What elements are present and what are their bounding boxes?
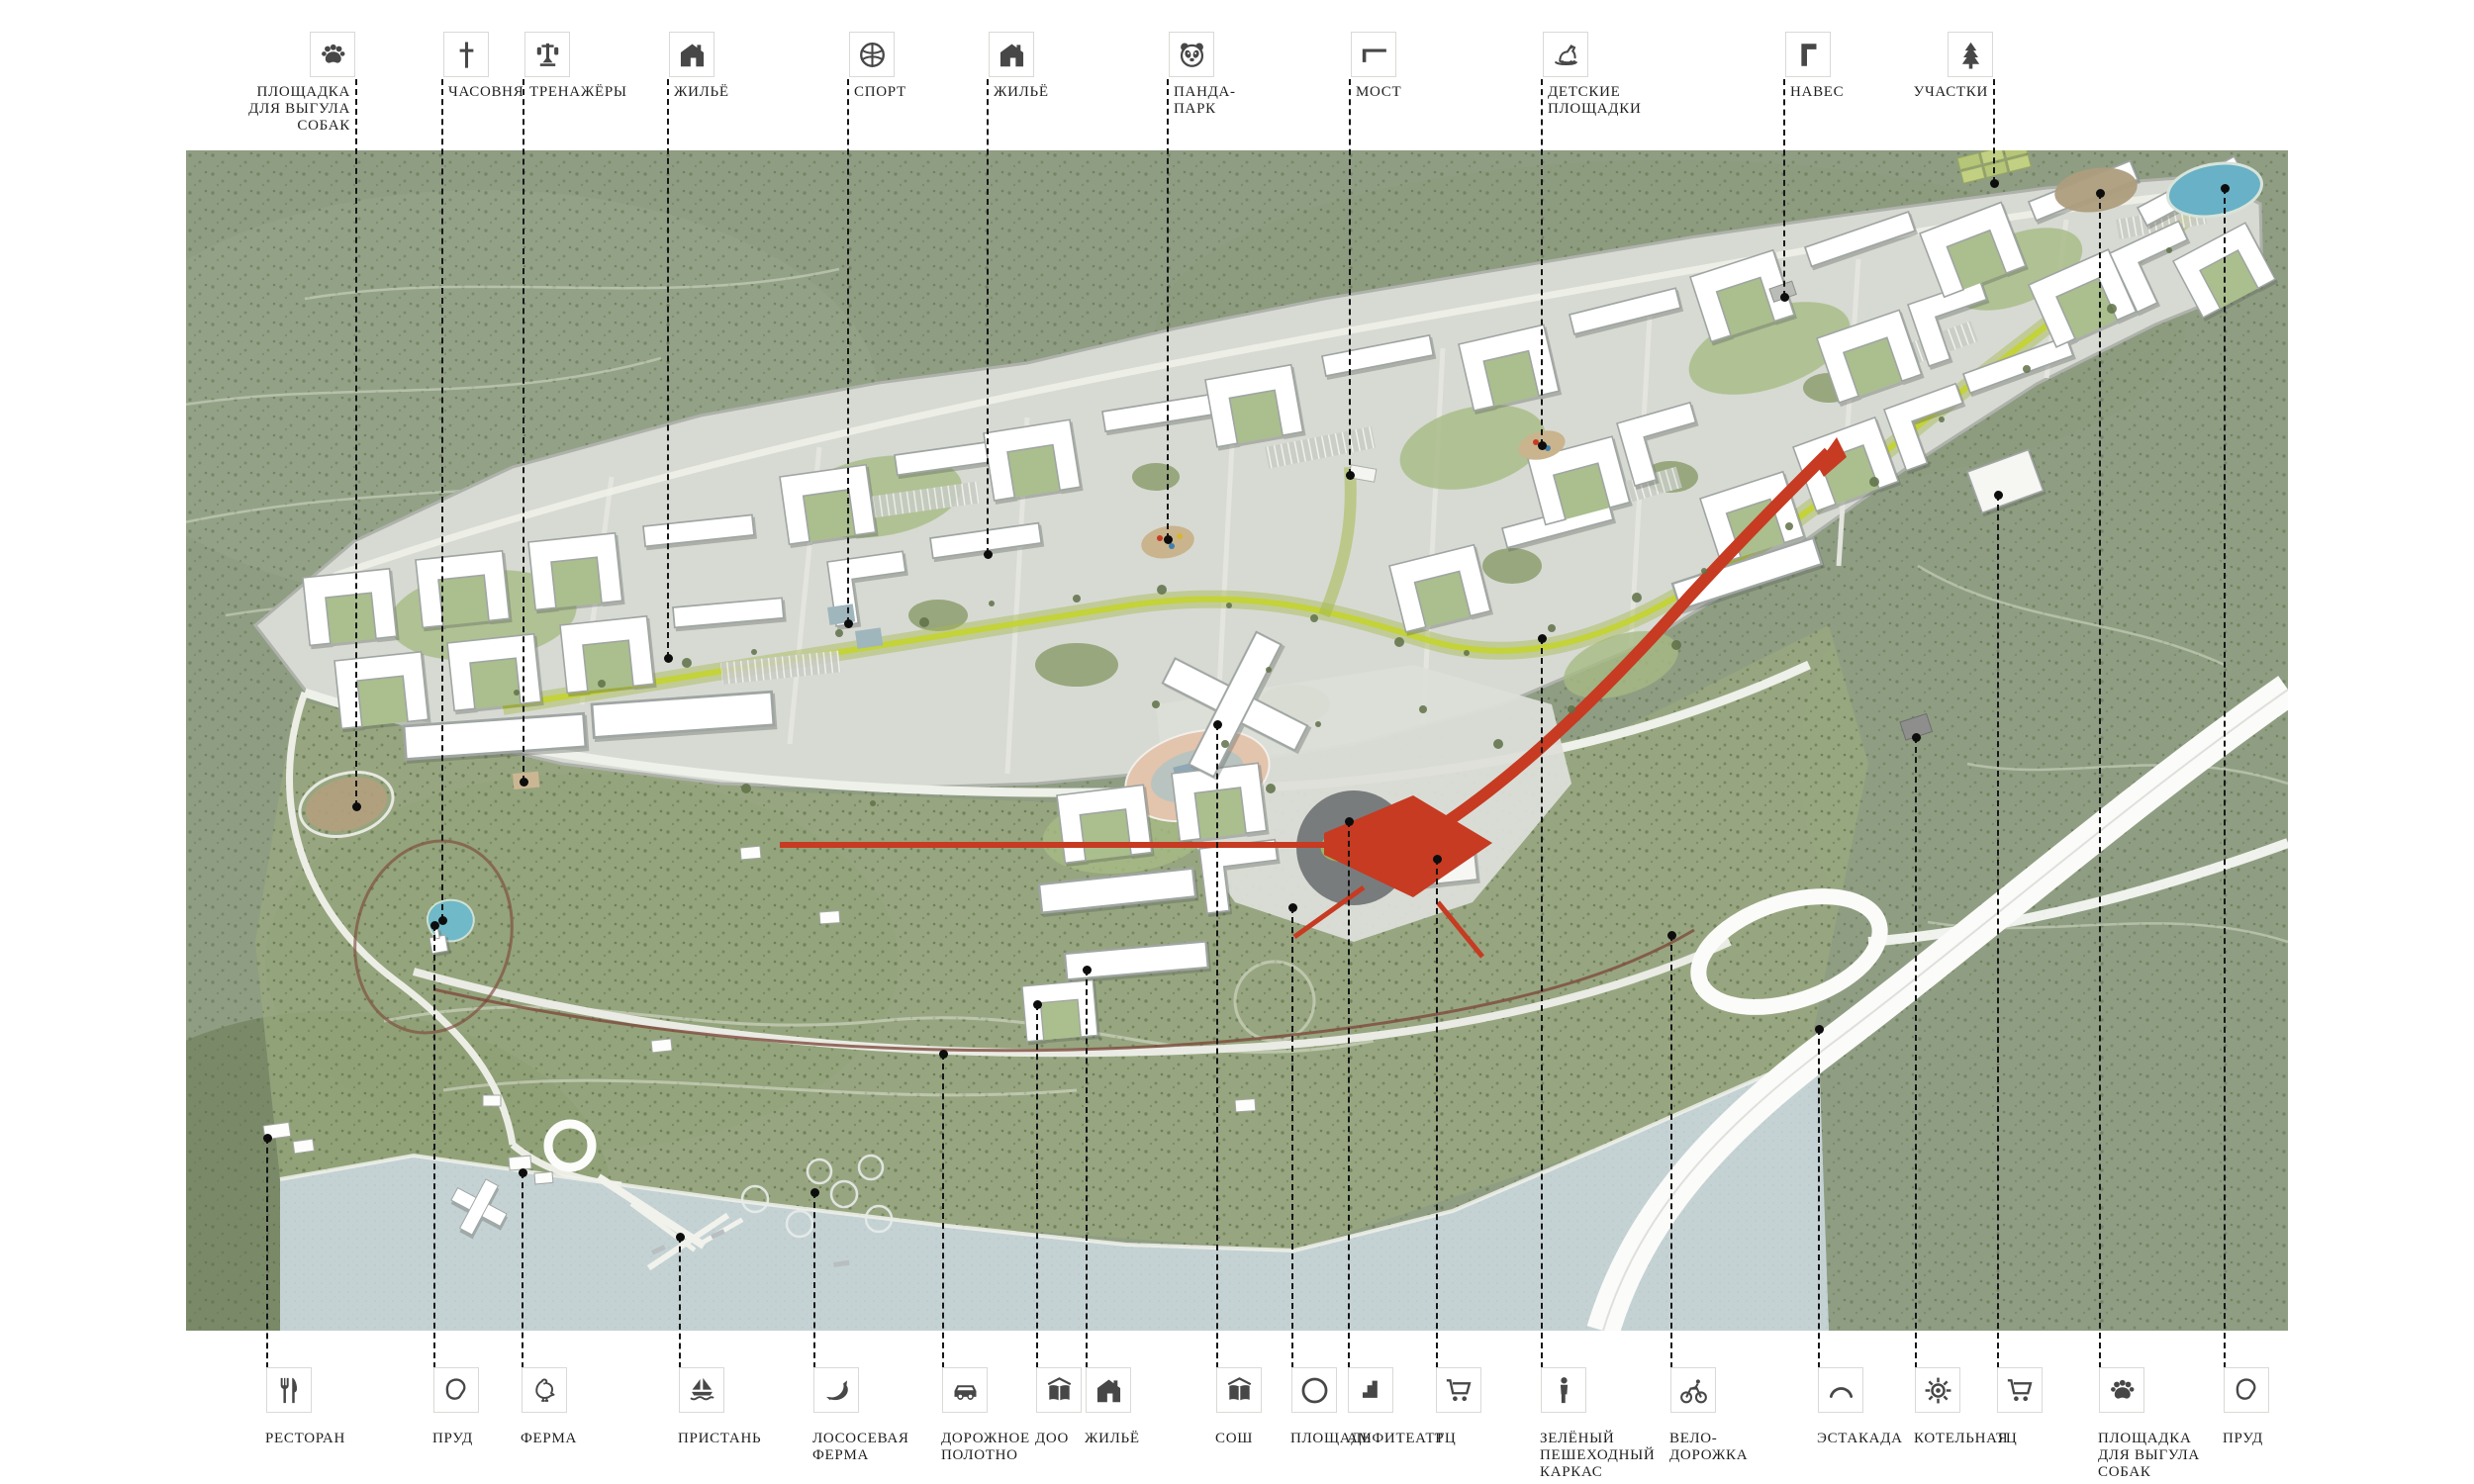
fish-icon <box>820 1374 853 1407</box>
leader-line <box>1541 79 1543 445</box>
legend-label: ПЛОЩАДКА ДЛЯ ВЫГУЛА СОБАК <box>2098 1431 2200 1481</box>
leader-dot <box>1990 179 1999 188</box>
circle-icon <box>1298 1374 1331 1407</box>
legend-label: ТРЕНАЖЁРЫ <box>529 84 627 101</box>
legend-iconbox <box>813 1367 859 1413</box>
leader-line <box>1436 859 1438 1368</box>
masterplan-map <box>186 150 2288 1331</box>
legend-label: НАВЕС <box>1790 84 1844 101</box>
leader-dot <box>2096 189 2105 198</box>
car-icon <box>949 1374 982 1407</box>
legend-iconbox <box>524 32 570 77</box>
restaurant-icon <box>273 1374 306 1407</box>
legend-label: ПРУД <box>432 1431 473 1447</box>
leader-dot <box>2221 184 2230 193</box>
leader-dot <box>1994 491 2003 500</box>
legend-label: ПРУД <box>2223 1431 2263 1447</box>
school-book-icon <box>1223 1374 1256 1407</box>
paw-icon <box>2106 1374 2139 1407</box>
leader-dot <box>438 916 447 925</box>
legend-label: УЧАСТКИ <box>1914 84 1988 101</box>
leader-dot <box>520 778 528 787</box>
leader-dot <box>844 619 853 628</box>
leader-dot <box>676 1233 685 1242</box>
house-icon <box>1093 1374 1125 1407</box>
pedestrian-icon <box>1548 1374 1580 1407</box>
legend-label: ДОО <box>1035 1431 1069 1447</box>
leader-line <box>987 79 989 554</box>
amphitheatre-icon <box>1355 1374 1387 1407</box>
legend-iconbox <box>1785 32 1831 77</box>
leader-line <box>1670 935 1672 1368</box>
legend-iconbox <box>2224 1367 2269 1413</box>
legend-iconbox <box>942 1367 988 1413</box>
leader-dot <box>810 1188 819 1197</box>
leader-dot <box>1538 441 1547 450</box>
leader-dot <box>1288 903 1297 912</box>
leader-line <box>1291 907 1293 1368</box>
legend-iconbox <box>1670 1367 1716 1413</box>
leader-line <box>679 1237 681 1368</box>
sailboat-icon <box>686 1374 718 1407</box>
pond-icon <box>440 1374 473 1407</box>
leader-dot <box>1780 293 1789 302</box>
leader-line <box>1783 79 1785 297</box>
legend-label: ПРИСТАНЬ <box>678 1431 761 1447</box>
legend-iconbox <box>522 1367 567 1413</box>
gear-icon <box>1922 1374 1954 1407</box>
leader-line <box>2099 193 2101 1368</box>
legend-label: ДЕТСКИЕ ПЛОЩАДКИ <box>1548 84 1641 118</box>
leader-line <box>523 79 524 782</box>
leader-line <box>667 79 669 658</box>
bicycle-icon <box>1677 1374 1710 1407</box>
legend-iconbox <box>1086 1367 1131 1413</box>
legend-iconbox <box>1948 32 1993 77</box>
legend-label: ДОРОЖНОЕ ПОЛОТНО <box>941 1431 1030 1464</box>
legend-label: ЛОСОСЕВАЯ ФЕРМА <box>812 1431 909 1464</box>
chicken-icon <box>528 1374 561 1407</box>
legend-iconbox <box>266 1367 312 1413</box>
legend-iconbox <box>443 32 489 77</box>
leader-line <box>433 925 435 1368</box>
overpass-icon <box>1825 1374 1857 1407</box>
legend-label: ЗЕЛЁНЫЙ ПЕШЕХОДНЫЙ КАРКАС <box>1540 1431 1655 1481</box>
leader-dot <box>263 1134 272 1143</box>
legend-iconbox <box>2099 1367 2144 1413</box>
pond-icon <box>2231 1374 2263 1407</box>
leader-line <box>1036 1004 1038 1368</box>
leader-line <box>522 1172 523 1368</box>
legend-label: ЖИЛЬЁ <box>674 84 729 101</box>
legend-label: АМФИТЕАТР <box>1347 1431 1444 1447</box>
leader-dot <box>1083 966 1092 974</box>
house-icon <box>676 39 709 71</box>
legend-iconbox <box>1436 1367 1481 1413</box>
legend-label: ЧАСОВНЯ <box>448 84 523 101</box>
paw-icon <box>317 39 349 71</box>
legend-iconbox <box>310 32 355 77</box>
leader-line <box>1915 737 1917 1368</box>
legend-iconbox <box>1291 1367 1337 1413</box>
house-icon <box>996 39 1028 71</box>
leader-dot <box>430 921 439 930</box>
legend-iconbox <box>989 32 1034 77</box>
leader-line <box>1997 495 1999 1368</box>
legend-label: ЭСТАКАДА <box>1817 1431 1903 1447</box>
leader-dot <box>1213 720 1222 729</box>
legend-label: ТЦ <box>1435 1431 1456 1447</box>
leader-dot <box>1912 733 1921 742</box>
legend-iconbox <box>1348 1367 1393 1413</box>
legend-label: ПАНДА- ПАРК <box>1174 84 1236 118</box>
gym-icon <box>531 39 564 71</box>
legend-label: СПОРТ <box>854 84 906 101</box>
leader-line <box>1818 1029 1820 1368</box>
legend-iconbox <box>1541 1367 1586 1413</box>
legend-iconbox <box>1543 32 1588 77</box>
leader-line <box>1216 724 1218 1368</box>
leader-dot <box>352 802 361 811</box>
legend-iconbox <box>849 32 895 77</box>
legend-label: ТЦ <box>1996 1431 2017 1447</box>
legend-iconbox <box>1915 1367 1960 1413</box>
leader-dot <box>939 1050 948 1059</box>
leader-line <box>441 79 443 920</box>
leader-dot <box>1433 855 1442 864</box>
leader-dot <box>1815 1025 1824 1034</box>
masterplan-poster: ПЛОЩАДКА ДЛЯ ВЫГУЛА СОБАКЧАСОВНЯТРЕНАЖЁР… <box>0 0 2474 1484</box>
sport-ball-icon <box>856 39 889 71</box>
leader-line <box>1348 821 1350 1368</box>
leader-line <box>1349 79 1351 475</box>
leader-dot <box>1033 1000 1042 1009</box>
legend-iconbox <box>1997 1367 2043 1413</box>
legend-iconbox <box>433 1367 479 1413</box>
leader-dot <box>1164 535 1173 544</box>
cross-icon <box>450 39 483 71</box>
legend-label: КОТЕЛЬНАЯ <box>1914 1431 2008 1447</box>
bridge-icon <box>1358 39 1390 71</box>
legend-iconbox <box>1351 32 1396 77</box>
cart-icon <box>1443 1374 1475 1407</box>
leader-line <box>1167 79 1169 539</box>
leader-line <box>847 79 849 623</box>
leader-line <box>355 79 357 806</box>
panda-icon <box>1176 39 1208 71</box>
leader-line <box>813 1192 815 1368</box>
legend-label: СОШ <box>1215 1431 1253 1447</box>
leader-line <box>1541 638 1543 1368</box>
leader-line <box>266 1138 268 1368</box>
leader-line <box>1086 970 1088 1368</box>
legend-label: ВЕЛО- ДОРОЖКА <box>1669 1431 1748 1464</box>
leader-dot <box>984 550 993 559</box>
leader-dot <box>1667 931 1676 940</box>
legend-iconbox <box>1216 1367 1262 1413</box>
leader-dot <box>519 1168 527 1177</box>
leader-dot <box>1538 634 1547 643</box>
legend-label: ЖИЛЬЁ <box>994 84 1049 101</box>
leader-line <box>2224 188 2226 1368</box>
leader-dot <box>1346 471 1355 480</box>
legend-iconbox <box>669 32 714 77</box>
legend-label: ФЕРМА <box>521 1431 577 1447</box>
canopy-icon <box>1792 39 1825 71</box>
legend-label: РЕСТОРАН <box>265 1431 345 1447</box>
legend-label: МОСТ <box>1356 84 1401 101</box>
legend-iconbox <box>679 1367 724 1413</box>
cart-icon <box>2004 1374 2037 1407</box>
rocking-horse-icon <box>1550 39 1582 71</box>
school-book-icon <box>1043 1374 1076 1407</box>
legend-iconbox <box>1818 1367 1863 1413</box>
leader-dot <box>664 654 673 663</box>
leader-dot <box>1345 817 1354 826</box>
leader-line <box>1993 79 1995 183</box>
leader-line <box>942 1054 944 1368</box>
legend-iconbox <box>1169 32 1214 77</box>
tree-icon <box>1954 39 1987 71</box>
legend-label: ПЛОЩАДКА ДЛЯ ВЫГУЛА СОБАК <box>248 84 350 135</box>
legend-iconbox <box>1036 1367 1082 1413</box>
legend-label: ЖИЛЬЁ <box>1085 1431 1140 1447</box>
